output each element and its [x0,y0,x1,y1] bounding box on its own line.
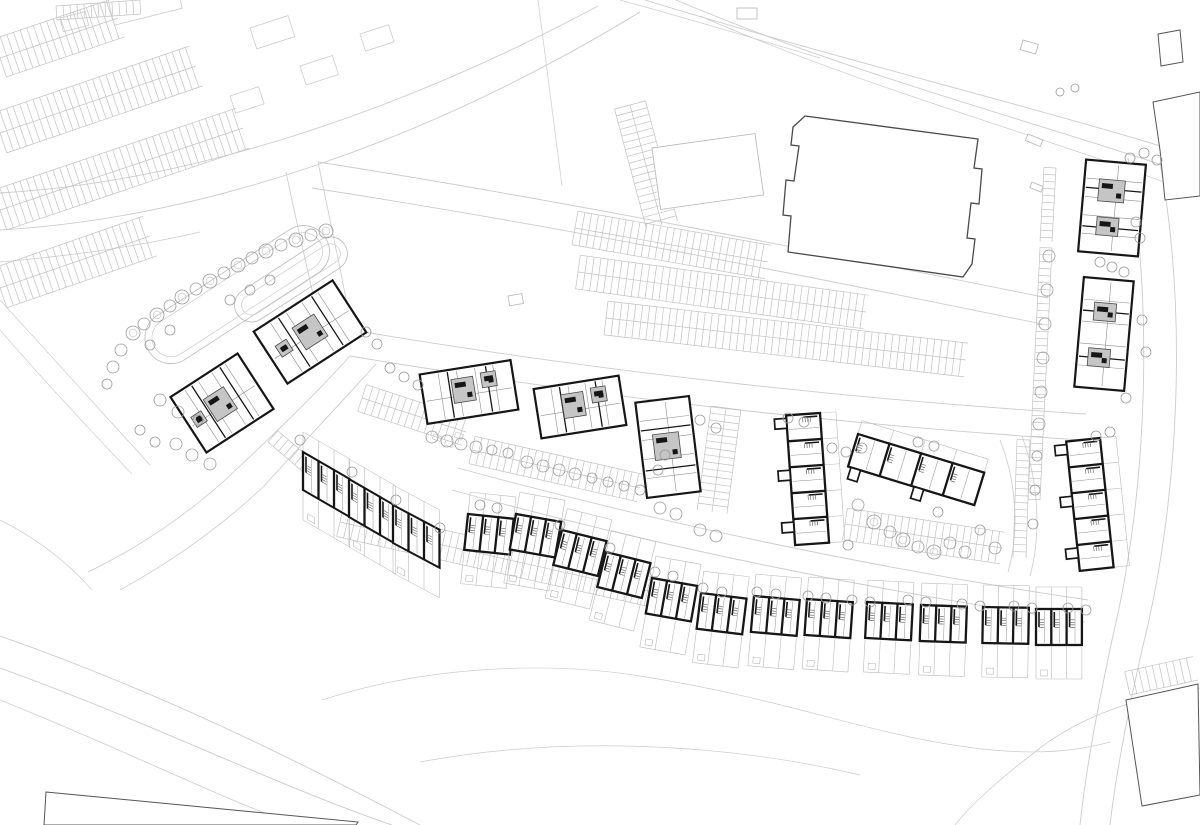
apartment-block [1078,160,1146,257]
tree [126,326,140,340]
tree [1028,519,1038,529]
terrace-row [748,574,802,670]
lift-core [1107,312,1112,317]
tree [275,239,287,251]
core [1098,179,1126,203]
lift-core [1116,193,1121,198]
shed [753,657,760,664]
context-building [44,792,358,825]
shed [986,668,993,674]
parking-row [604,301,968,377]
traffic-island [1025,134,1042,146]
parking-row [0,46,203,153]
parking-row [1013,440,1030,558]
apartment-block [170,354,273,453]
tree [175,290,189,304]
terrace-row [982,585,1029,678]
shed [697,654,705,661]
tree [884,526,896,538]
context-building [1158,30,1183,66]
shed [868,663,875,669]
tree [695,415,705,425]
tree [259,244,273,258]
tree [654,502,666,514]
lift-core [488,377,494,383]
road-path [0,300,150,465]
tree [1033,418,1045,430]
tree [347,467,357,477]
wing [911,487,924,501]
tree [1056,88,1064,96]
tree [225,295,235,305]
wing [847,467,860,481]
tree [1137,315,1147,325]
shed [807,660,814,666]
shed [645,639,653,646]
apartment-block [534,376,627,439]
parking-row [56,0,141,20]
tree [1105,427,1115,437]
road-path [120,486,264,590]
tree [372,339,382,349]
retail-building [783,116,982,277]
lift-core [1110,227,1115,232]
tree [989,542,1001,554]
road-path [0,232,200,262]
tree [218,267,230,279]
tree [1107,262,1117,272]
tree [913,437,923,447]
tree [694,524,706,536]
shed [466,575,474,582]
shed [354,541,361,551]
tree [475,500,485,510]
lift-core [598,392,604,398]
road-path [88,468,238,572]
tree [204,458,216,470]
traffic-island [1020,40,1038,54]
wing [1055,445,1068,456]
apartment-block [635,396,700,498]
shed [923,666,930,672]
context-building [1126,684,1200,806]
parking-row [697,406,741,514]
terrace-row [692,571,749,668]
parking-row [0,108,250,230]
parking-row [843,508,1005,564]
wing [774,418,787,429]
context-structure [300,55,339,85]
wing [1060,496,1073,507]
road-path [538,0,562,186]
tree [1139,148,1149,158]
road-path [620,0,820,58]
tree [635,485,645,495]
tree [1119,267,1129,277]
traffic-island [508,294,524,306]
tree [670,508,682,520]
terrace-row [1054,436,1129,572]
terrace-row [1036,587,1082,679]
tree [265,275,275,285]
shed [594,612,602,620]
stair-core [1091,352,1102,358]
tree [165,325,175,335]
tree [852,499,864,511]
tree [841,447,851,457]
tree [1121,393,1131,403]
tree [115,344,127,356]
tree [944,537,956,549]
wing [778,470,791,481]
tree [896,533,910,547]
tree [827,443,837,453]
context-structure [230,87,264,113]
core [652,432,681,461]
traffic-island [652,134,764,210]
tree [305,229,317,241]
tree [975,525,985,535]
parking-rows [0,0,1198,695]
context-building [1153,92,1200,200]
road-path [1000,440,1015,572]
shed [398,566,405,576]
tree [319,224,333,238]
road-path [0,520,92,590]
tree [1032,451,1042,461]
tree [1037,352,1049,364]
tree [150,437,160,447]
core [451,376,476,403]
tree [927,545,941,559]
wing [1065,548,1078,559]
road-path [420,746,860,775]
tree [698,583,708,593]
tree [135,425,145,435]
tree [668,571,678,581]
context-structure [360,25,394,51]
parking-row [1040,167,1056,242]
core [561,391,586,418]
tree [1043,250,1055,262]
tree [867,515,881,529]
stair-core [1097,306,1108,312]
site-plan [0,0,1200,825]
context-structure [250,16,295,49]
tree [138,318,150,330]
tree [164,300,176,312]
tree [102,379,112,389]
parking-row [0,216,157,308]
traffic-island [737,8,757,19]
tree [1141,347,1151,357]
tree [1071,84,1079,92]
tree [605,543,615,553]
terrace-row [863,580,914,674]
terrace-row [393,485,440,598]
shed [308,514,315,524]
wing [782,522,795,533]
tree [245,285,255,295]
traffic-island [1030,182,1043,192]
trees [102,84,1162,615]
tree [650,567,660,577]
tree [619,481,629,491]
parking-row [1028,247,1052,500]
tree [933,507,943,517]
tree [150,308,164,322]
tree [231,258,245,272]
tree [492,503,502,513]
tree [154,394,166,406]
tree [295,435,305,445]
tree [487,445,497,455]
stair-core [1099,221,1110,227]
tree [170,438,182,450]
road-path [0,6,598,193]
tree [107,361,119,373]
road-path [0,330,132,474]
lift-core [1101,358,1106,363]
apartment-block [1074,277,1133,391]
terrace-row [303,432,350,547]
stair-core [1102,183,1113,189]
terrace-row [349,459,396,574]
tree [1095,257,1105,267]
terrace-row [461,492,516,588]
tree [186,449,198,461]
parking-row [572,211,771,278]
masterplan-canvas [0,0,1200,825]
road-path [322,668,1110,752]
terrace-row [774,412,845,546]
lift-core [577,407,583,413]
shed [1041,670,1048,676]
tree [385,363,395,373]
tree [391,495,401,505]
shed [550,590,558,598]
tree [190,283,202,295]
tree [399,372,409,382]
tree [843,540,853,550]
parking-row [576,255,869,329]
core [1087,348,1110,368]
lift-core [467,392,473,398]
lift-core [672,449,678,455]
terrace-row [845,421,989,517]
